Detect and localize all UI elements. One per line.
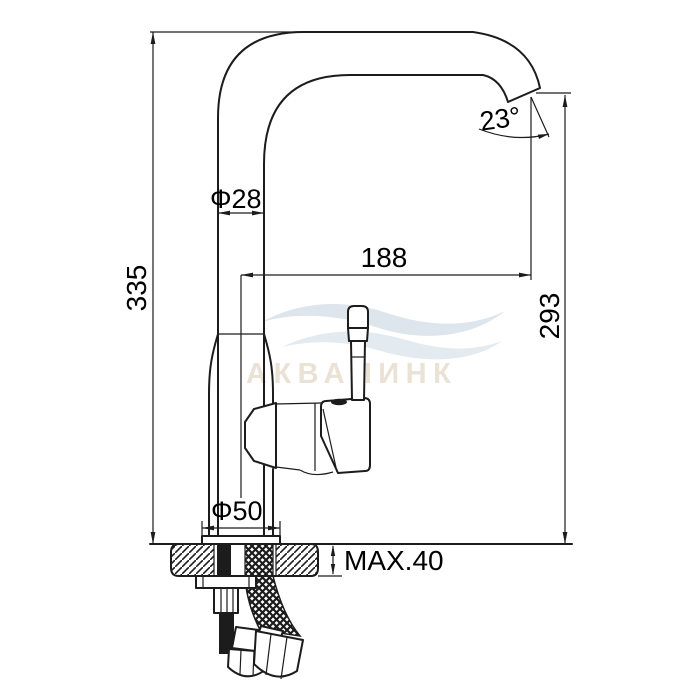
handle-knob-cap — [348, 306, 368, 328]
handle-knob-band — [348, 328, 368, 341]
brand-watermark: АКВАЛИНК — [246, 304, 505, 390]
dim-max-thickness-40: MAX.40 — [331, 545, 444, 576]
dim-293-label: 293 — [534, 293, 565, 340]
dim-293-arrow-top — [563, 95, 568, 107]
dim-335-arrow-bottom — [151, 532, 156, 544]
dim-188-label: 188 — [361, 242, 408, 273]
mounting-stud-section — [217, 544, 231, 576]
dim-335-arrow-top — [151, 32, 156, 44]
angle-arc-arrow — [538, 134, 549, 139]
watermark-wave-lower — [282, 332, 502, 360]
handle-stem — [351, 341, 365, 400]
dim-188-arrow-right — [519, 273, 531, 278]
under-counter-hardware — [196, 576, 303, 679]
watermark-wave-upper — [262, 304, 505, 336]
technical-drawing-canvas: АКВАЛИНК — [0, 0, 700, 700]
countertop-slab-fills — [171, 544, 318, 576]
dimension-annotations: 335 Φ28 188 23° 293 — [121, 32, 571, 576]
spout-tube — [218, 32, 540, 334]
slab-hatch-left — [171, 544, 214, 576]
dim-293-arrow-bottom — [563, 532, 568, 544]
dim-50-label: Φ50 — [211, 496, 263, 526]
dim-max40-arrow-bottom — [331, 564, 335, 575]
dim-188-arrow-left — [241, 273, 253, 278]
dim-spout-diameter-28: Φ28 — [210, 184, 264, 215]
mounting-bracket-plate — [196, 576, 256, 588]
threaded-stud — [214, 588, 238, 613]
dim-max40-label: MAX.40 — [344, 545, 444, 576]
valve-hex-cap — [245, 403, 276, 468]
valve-block-top-edge — [276, 403, 321, 404]
faucet-drawing-svg: АКВАЛИНК — [0, 0, 700, 700]
dim-max40-arrow-top — [331, 545, 335, 556]
lever-handle — [348, 306, 368, 400]
dim-28-label: Φ28 — [210, 184, 262, 214]
angle-slanted-leg — [531, 97, 549, 137]
valve-block-bottom-edge — [276, 467, 300, 470]
cartridge-top-screw — [331, 399, 347, 405]
hose-section-braid — [245, 544, 273, 576]
slab-hatch-right — [276, 544, 318, 576]
dim-335-label: 335 — [121, 265, 152, 312]
valve-bottom-arc — [300, 470, 333, 475]
dim-base-diameter-50: Φ50 — [202, 496, 280, 536]
dim-outlet-angle-23: 23° — [478, 97, 549, 280]
dim-23-label: 23° — [478, 101, 523, 136]
dim-outlet-height-293: 293 — [534, 93, 571, 544]
hose-nut-large — [254, 631, 303, 677]
base-flange — [202, 536, 280, 544]
